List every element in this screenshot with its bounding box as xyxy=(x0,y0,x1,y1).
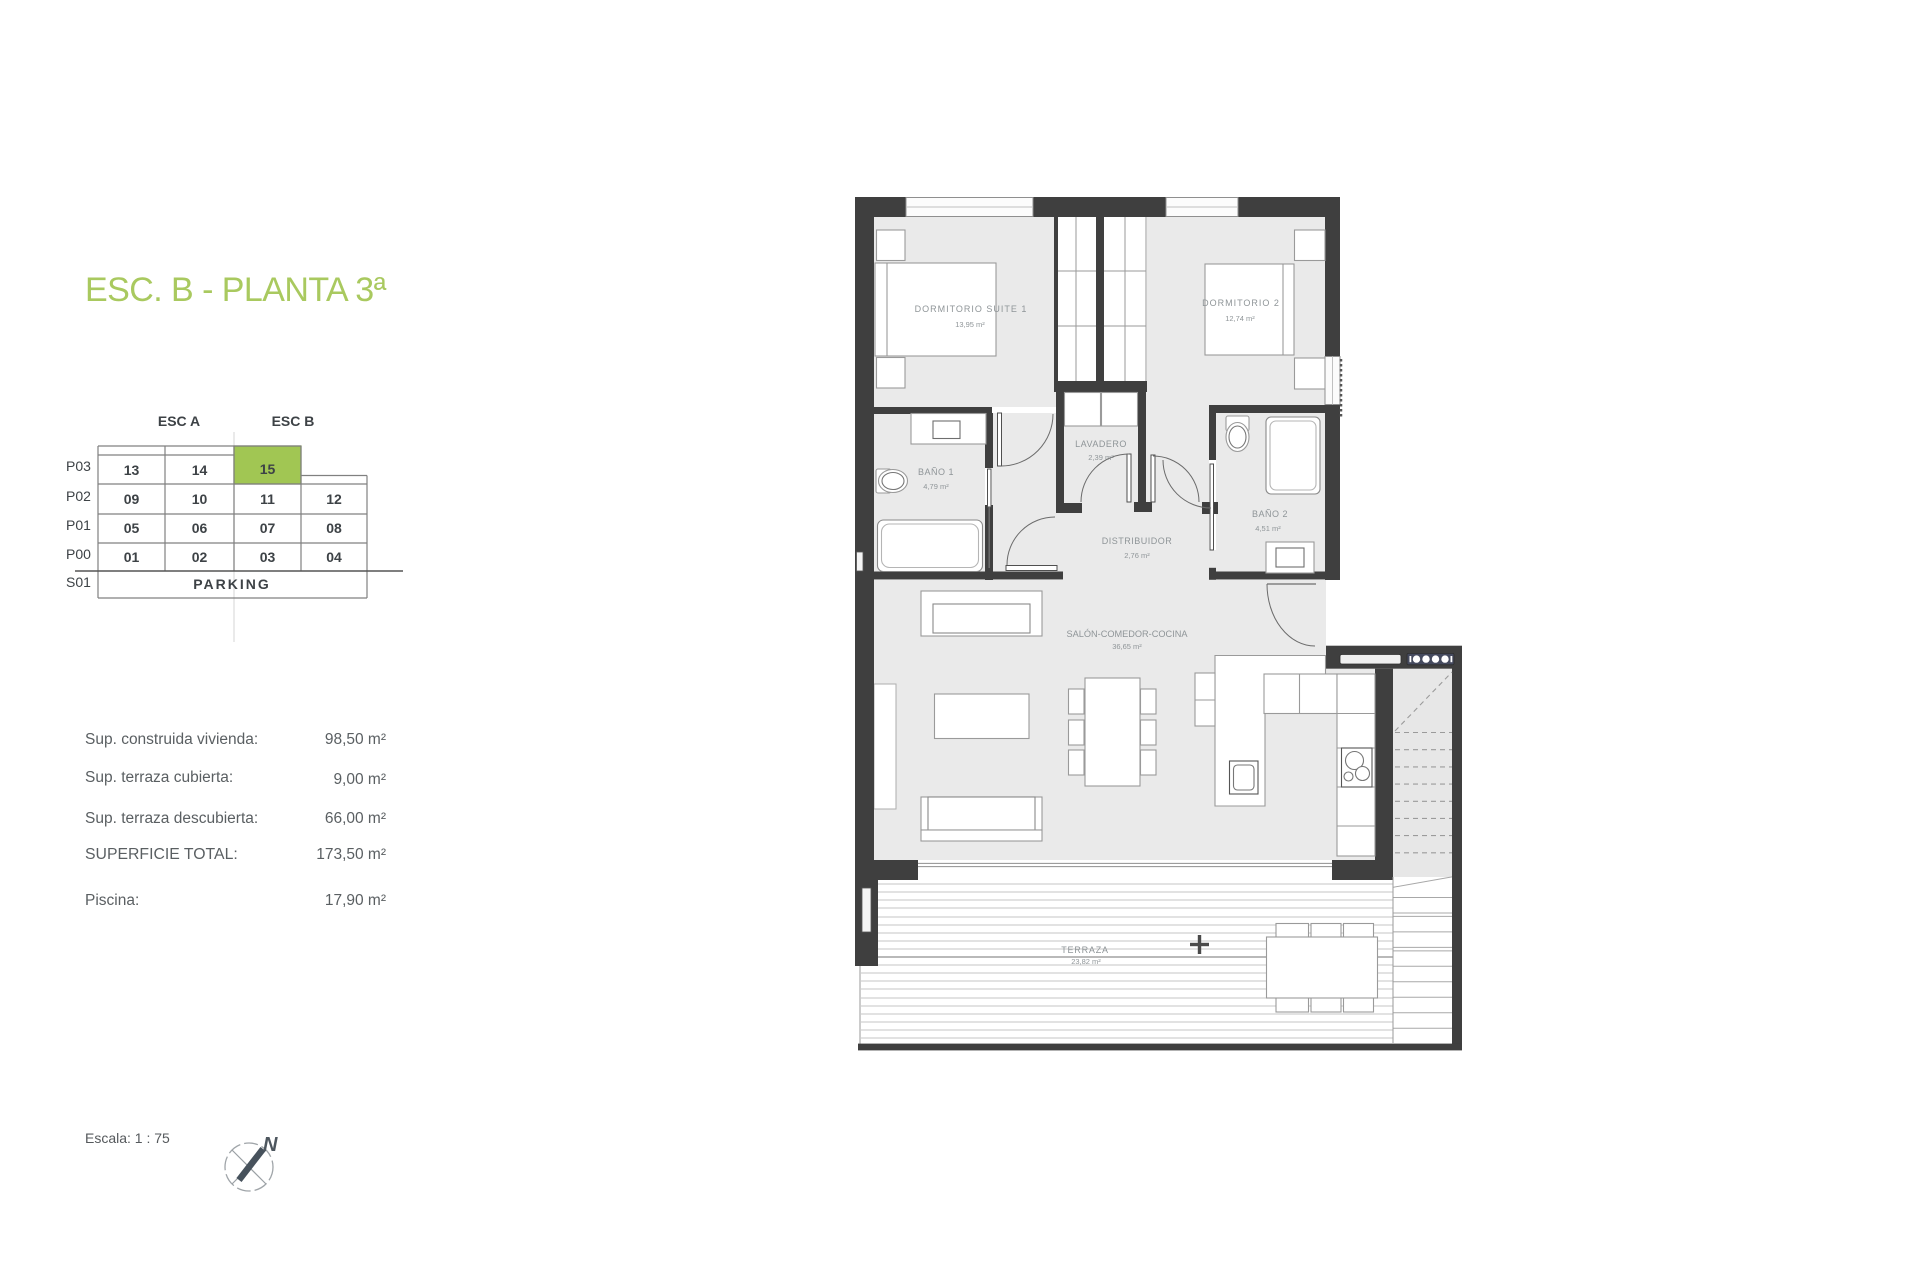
svg-text:P00: P00 xyxy=(66,546,91,562)
svg-text:ESC A: ESC A xyxy=(158,413,200,429)
svg-text:06: 06 xyxy=(192,520,208,536)
svg-text:09: 09 xyxy=(124,491,140,507)
svg-text:03: 03 xyxy=(260,549,276,565)
svg-text:02: 02 xyxy=(192,549,208,565)
svg-text:TERRAZA: TERRAZA xyxy=(1061,945,1109,955)
svg-text:LAVADERO: LAVADERO xyxy=(1075,439,1127,449)
svg-text:Sup. construida vivienda:: Sup. construida vivienda: xyxy=(85,731,258,748)
svg-text:Piscina:: Piscina: xyxy=(85,892,139,909)
svg-text:P03: P03 xyxy=(66,458,91,474)
svg-text:BAÑO 2: BAÑO 2 xyxy=(1252,509,1288,519)
svg-text:Sup. terraza descubierta:: Sup. terraza descubierta: xyxy=(85,810,258,827)
svg-text:14: 14 xyxy=(192,462,208,478)
svg-text:08: 08 xyxy=(326,520,342,536)
svg-text:Sup. terraza cubierta:: Sup. terraza cubierta: xyxy=(85,769,233,786)
svg-text:Escala: 1 : 75: Escala: 1 : 75 xyxy=(85,1130,170,1146)
svg-text:S01: S01 xyxy=(66,574,91,590)
svg-text:04: 04 xyxy=(326,549,342,565)
svg-text:13,95 m²: 13,95 m² xyxy=(955,320,985,329)
svg-text:4,51 m²: 4,51 m² xyxy=(1255,524,1281,533)
svg-text:173,50 m²: 173,50 m² xyxy=(316,846,386,863)
svg-text:01: 01 xyxy=(124,549,140,565)
svg-text:36,65 m²: 36,65 m² xyxy=(1112,642,1142,651)
svg-text:SUPERFICIE TOTAL:: SUPERFICIE TOTAL: xyxy=(85,846,238,863)
svg-text:2,39 m²: 2,39 m² xyxy=(1088,453,1114,462)
svg-text:PARKING: PARKING xyxy=(193,576,271,592)
svg-text:05: 05 xyxy=(124,520,140,536)
svg-text:2,76 m²: 2,76 m² xyxy=(1124,551,1150,560)
svg-text:11: 11 xyxy=(260,491,275,507)
svg-text:P01: P01 xyxy=(66,517,91,533)
svg-text:P02: P02 xyxy=(66,488,91,504)
svg-text:ESC. B - PLANTA 3ª: ESC. B - PLANTA 3ª xyxy=(85,271,387,309)
svg-text:13: 13 xyxy=(124,462,140,478)
svg-text:23,82 m²: 23,82 m² xyxy=(1071,957,1101,966)
svg-text:12,74 m²: 12,74 m² xyxy=(1225,314,1255,323)
svg-text:17,90 m²: 17,90 m² xyxy=(325,892,386,909)
svg-text:10: 10 xyxy=(192,491,208,507)
svg-text:N: N xyxy=(263,1134,278,1156)
svg-text:98,50 m²: 98,50 m² xyxy=(325,731,386,748)
svg-text:SALÓN-COMEDOR-COCINA: SALÓN-COMEDOR-COCINA xyxy=(1067,629,1189,639)
svg-text:07: 07 xyxy=(260,520,276,536)
svg-text:DORMITORIO SUITE 1: DORMITORIO SUITE 1 xyxy=(915,304,1028,314)
svg-text:15: 15 xyxy=(260,461,276,477)
svg-text:66,00 m²: 66,00 m² xyxy=(325,810,386,827)
svg-text:DORMITORIO 2: DORMITORIO 2 xyxy=(1202,298,1280,308)
svg-text:12: 12 xyxy=(326,491,342,507)
svg-text:9,00 m²: 9,00 m² xyxy=(333,771,386,788)
svg-text:4,79 m²: 4,79 m² xyxy=(923,482,949,491)
svg-text:BAÑO 1: BAÑO 1 xyxy=(918,467,954,477)
svg-text:ESC B: ESC B xyxy=(272,413,315,429)
svg-text:DISTRIBUIDOR: DISTRIBUIDOR xyxy=(1102,536,1173,546)
